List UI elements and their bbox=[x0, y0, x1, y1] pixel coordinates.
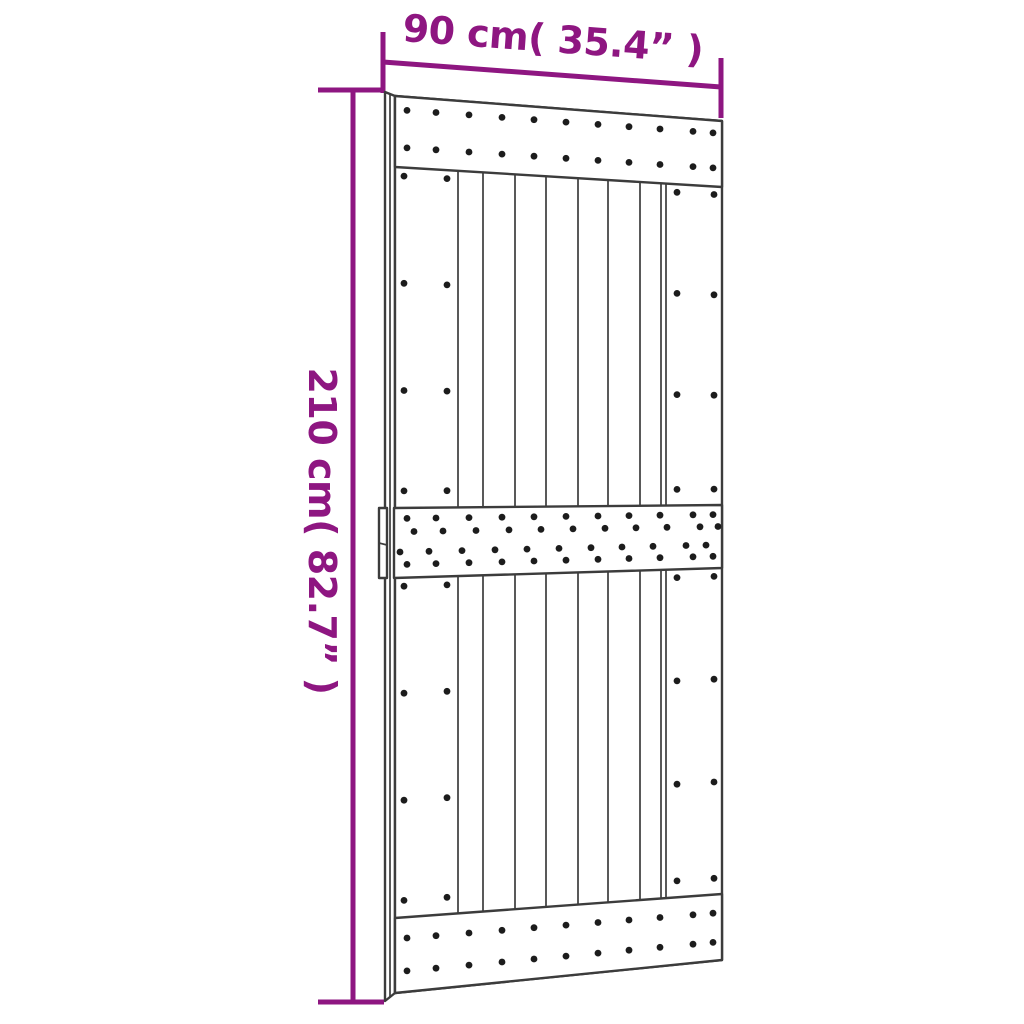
screw-dot bbox=[440, 528, 447, 535]
screw-dot bbox=[444, 582, 451, 589]
screw-dot bbox=[710, 939, 717, 946]
screw-dot bbox=[683, 542, 690, 549]
screw-dot bbox=[499, 514, 506, 521]
screw-dot bbox=[674, 290, 681, 297]
screw-dot bbox=[433, 560, 440, 567]
screw-dot bbox=[711, 573, 718, 580]
screw-dot bbox=[711, 291, 718, 298]
screw-dot bbox=[473, 527, 480, 534]
screw-dot bbox=[711, 779, 718, 786]
screw-dot bbox=[499, 151, 506, 158]
screw-dot bbox=[499, 114, 506, 121]
door-drawing bbox=[379, 92, 722, 1001]
screw-dot bbox=[674, 486, 681, 493]
screw-dot bbox=[602, 525, 609, 532]
screw-dot bbox=[531, 513, 538, 520]
screw-dot bbox=[401, 797, 408, 804]
screw-dot bbox=[556, 545, 563, 552]
screw-dot bbox=[531, 558, 538, 565]
door-handle bbox=[379, 508, 387, 578]
screw-dot bbox=[690, 911, 697, 918]
screw-dot bbox=[657, 554, 664, 561]
screw-dot bbox=[433, 109, 440, 116]
screw-dot bbox=[710, 165, 717, 172]
screw-dot bbox=[401, 387, 408, 394]
screw-dot bbox=[426, 548, 433, 555]
screw-dot bbox=[710, 511, 717, 518]
screw-dot bbox=[499, 559, 506, 566]
screw-dot bbox=[404, 935, 411, 942]
screw-dot bbox=[459, 547, 466, 554]
screw-dot bbox=[404, 107, 411, 114]
screw-dot bbox=[657, 512, 664, 519]
screw-dot bbox=[674, 189, 681, 196]
screw-dot bbox=[715, 523, 722, 530]
screw-dot bbox=[466, 559, 473, 566]
screw-dot bbox=[444, 388, 451, 395]
screw-dot bbox=[531, 153, 538, 160]
screw-dot bbox=[466, 149, 473, 156]
screw-dot bbox=[499, 927, 506, 934]
screw-dot bbox=[466, 514, 473, 521]
screw-dot bbox=[563, 513, 570, 520]
screw-dot bbox=[595, 919, 602, 926]
screw-dot bbox=[595, 556, 602, 563]
screw-dot bbox=[524, 546, 531, 553]
screw-dot bbox=[626, 123, 633, 130]
screw-dot bbox=[697, 523, 704, 530]
screw-dot bbox=[444, 688, 451, 695]
screw-dot bbox=[444, 794, 451, 801]
screw-dot bbox=[588, 544, 595, 551]
screw-dot bbox=[664, 524, 671, 531]
screw-dot bbox=[619, 544, 626, 551]
screw-dot bbox=[401, 583, 408, 590]
screw-dot bbox=[466, 112, 473, 119]
height-dimension-label: 210 cm( 82.7” ) bbox=[300, 367, 344, 694]
screw-dot bbox=[401, 173, 408, 180]
screw-dot bbox=[433, 146, 440, 153]
screw-dot bbox=[710, 553, 717, 560]
screw-dot bbox=[531, 116, 538, 123]
screw-dot bbox=[404, 968, 411, 975]
screw-dot bbox=[404, 561, 411, 568]
screw-dot bbox=[657, 161, 664, 168]
screw-dot bbox=[466, 930, 473, 937]
screw-dot bbox=[595, 513, 602, 520]
screw-dot bbox=[710, 130, 717, 137]
screw-dot bbox=[563, 953, 570, 960]
screw-dot bbox=[626, 917, 633, 924]
screw-dot bbox=[710, 910, 717, 917]
screw-dot bbox=[444, 894, 451, 901]
screw-dot bbox=[563, 922, 570, 929]
screw-dot bbox=[650, 543, 657, 550]
screw-dot bbox=[433, 515, 440, 522]
screw-dot bbox=[404, 145, 411, 152]
screw-dot bbox=[444, 175, 451, 182]
screw-dot bbox=[444, 282, 451, 289]
barn-door-dimension-diagram: 210 cm( 82.7” ) 90 cm( 35.4” ) bbox=[0, 0, 1024, 1024]
screw-dot bbox=[563, 119, 570, 126]
screw-dot bbox=[401, 488, 408, 495]
screw-dot bbox=[563, 557, 570, 564]
screw-dot bbox=[690, 128, 697, 135]
screw-dot bbox=[531, 956, 538, 963]
screw-dot bbox=[433, 965, 440, 972]
screw-dot bbox=[690, 511, 697, 518]
dimension-diagram-canvas: 210 cm( 82.7” ) 90 cm( 35.4” ) bbox=[0, 0, 1024, 1024]
screw-dot bbox=[703, 542, 710, 549]
screw-dot bbox=[466, 962, 473, 969]
screw-dot bbox=[711, 676, 718, 683]
screw-dot bbox=[595, 950, 602, 957]
screw-dot bbox=[401, 690, 408, 697]
screw-dot bbox=[626, 512, 633, 519]
height-dimension: 210 cm( 82.7” ) bbox=[300, 90, 384, 1002]
screw-dot bbox=[401, 280, 408, 287]
screw-dot bbox=[711, 191, 718, 198]
screw-dot bbox=[657, 126, 664, 133]
width-dimension-label: 90 cm( 35.4” ) bbox=[401, 6, 705, 72]
screw-dot bbox=[404, 515, 411, 522]
screw-dot bbox=[506, 527, 513, 534]
screw-dot bbox=[690, 941, 697, 948]
screw-dot bbox=[492, 546, 499, 553]
screw-dot bbox=[711, 392, 718, 399]
screw-dot bbox=[711, 486, 718, 493]
screw-dot bbox=[633, 524, 640, 531]
screw-dot bbox=[657, 944, 664, 951]
screw-dot bbox=[401, 897, 408, 904]
screw-dot bbox=[397, 549, 404, 556]
screw-dot bbox=[674, 878, 681, 885]
screw-dot bbox=[626, 555, 633, 562]
screw-dot bbox=[595, 157, 602, 164]
screw-dot bbox=[531, 924, 538, 931]
screw-dot bbox=[690, 553, 697, 560]
screw-dot bbox=[711, 875, 718, 882]
screw-dot bbox=[690, 163, 697, 170]
screw-dot bbox=[499, 959, 506, 966]
screw-dot bbox=[674, 678, 681, 685]
screw-dot bbox=[433, 932, 440, 939]
middle-rail bbox=[394, 505, 722, 578]
screw-dot bbox=[411, 528, 418, 535]
screw-dot bbox=[563, 155, 570, 162]
screw-dot bbox=[444, 487, 451, 494]
screw-dot bbox=[538, 526, 545, 533]
screw-dot bbox=[674, 574, 681, 581]
screw-dot bbox=[626, 159, 633, 166]
screw-dot bbox=[657, 914, 664, 921]
screw-dot bbox=[626, 947, 633, 954]
screw-dot bbox=[674, 781, 681, 788]
screw-dot bbox=[570, 526, 577, 533]
screw-dot bbox=[674, 391, 681, 398]
screw-dot bbox=[595, 121, 602, 128]
